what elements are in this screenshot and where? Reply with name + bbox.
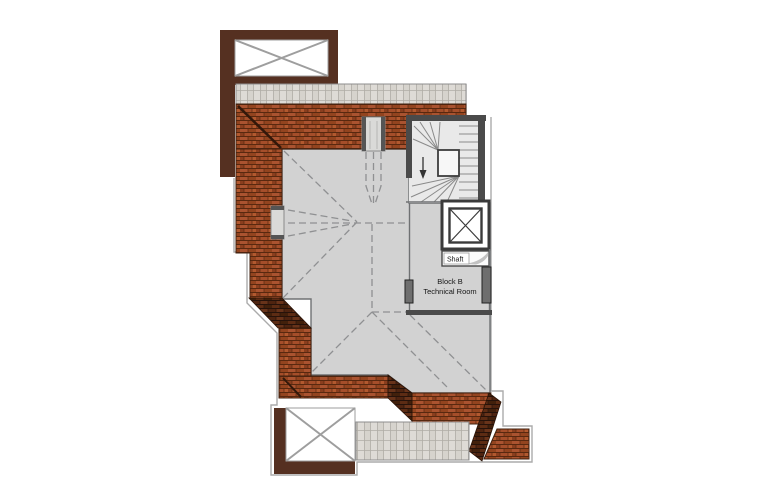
- shaft-label-box: Shaft: [442, 251, 489, 266]
- technical-room-label-line2: Technical Room: [423, 287, 476, 296]
- skylight-bottom-box: [274, 408, 355, 474]
- stair-void: [438, 150, 459, 176]
- bottom-terrace-pavers: [356, 422, 469, 460]
- floor-plan-svg: Shaft Block B Technical Room: [0, 0, 757, 500]
- floor-plan-canvas: Shaft Block B Technical Room: [0, 0, 757, 500]
- left-roof-vent: [271, 206, 284, 239]
- elevator-shaft: [442, 201, 489, 249]
- top-terrace-pavers: [236, 84, 466, 104]
- door-jamb-right: [482, 267, 491, 303]
- chimney-vent: [362, 117, 385, 151]
- shaft-label: Shaft: [447, 257, 463, 264]
- technical-room-label-line1: Block B: [437, 277, 462, 286]
- door-jamb-left: [405, 280, 413, 303]
